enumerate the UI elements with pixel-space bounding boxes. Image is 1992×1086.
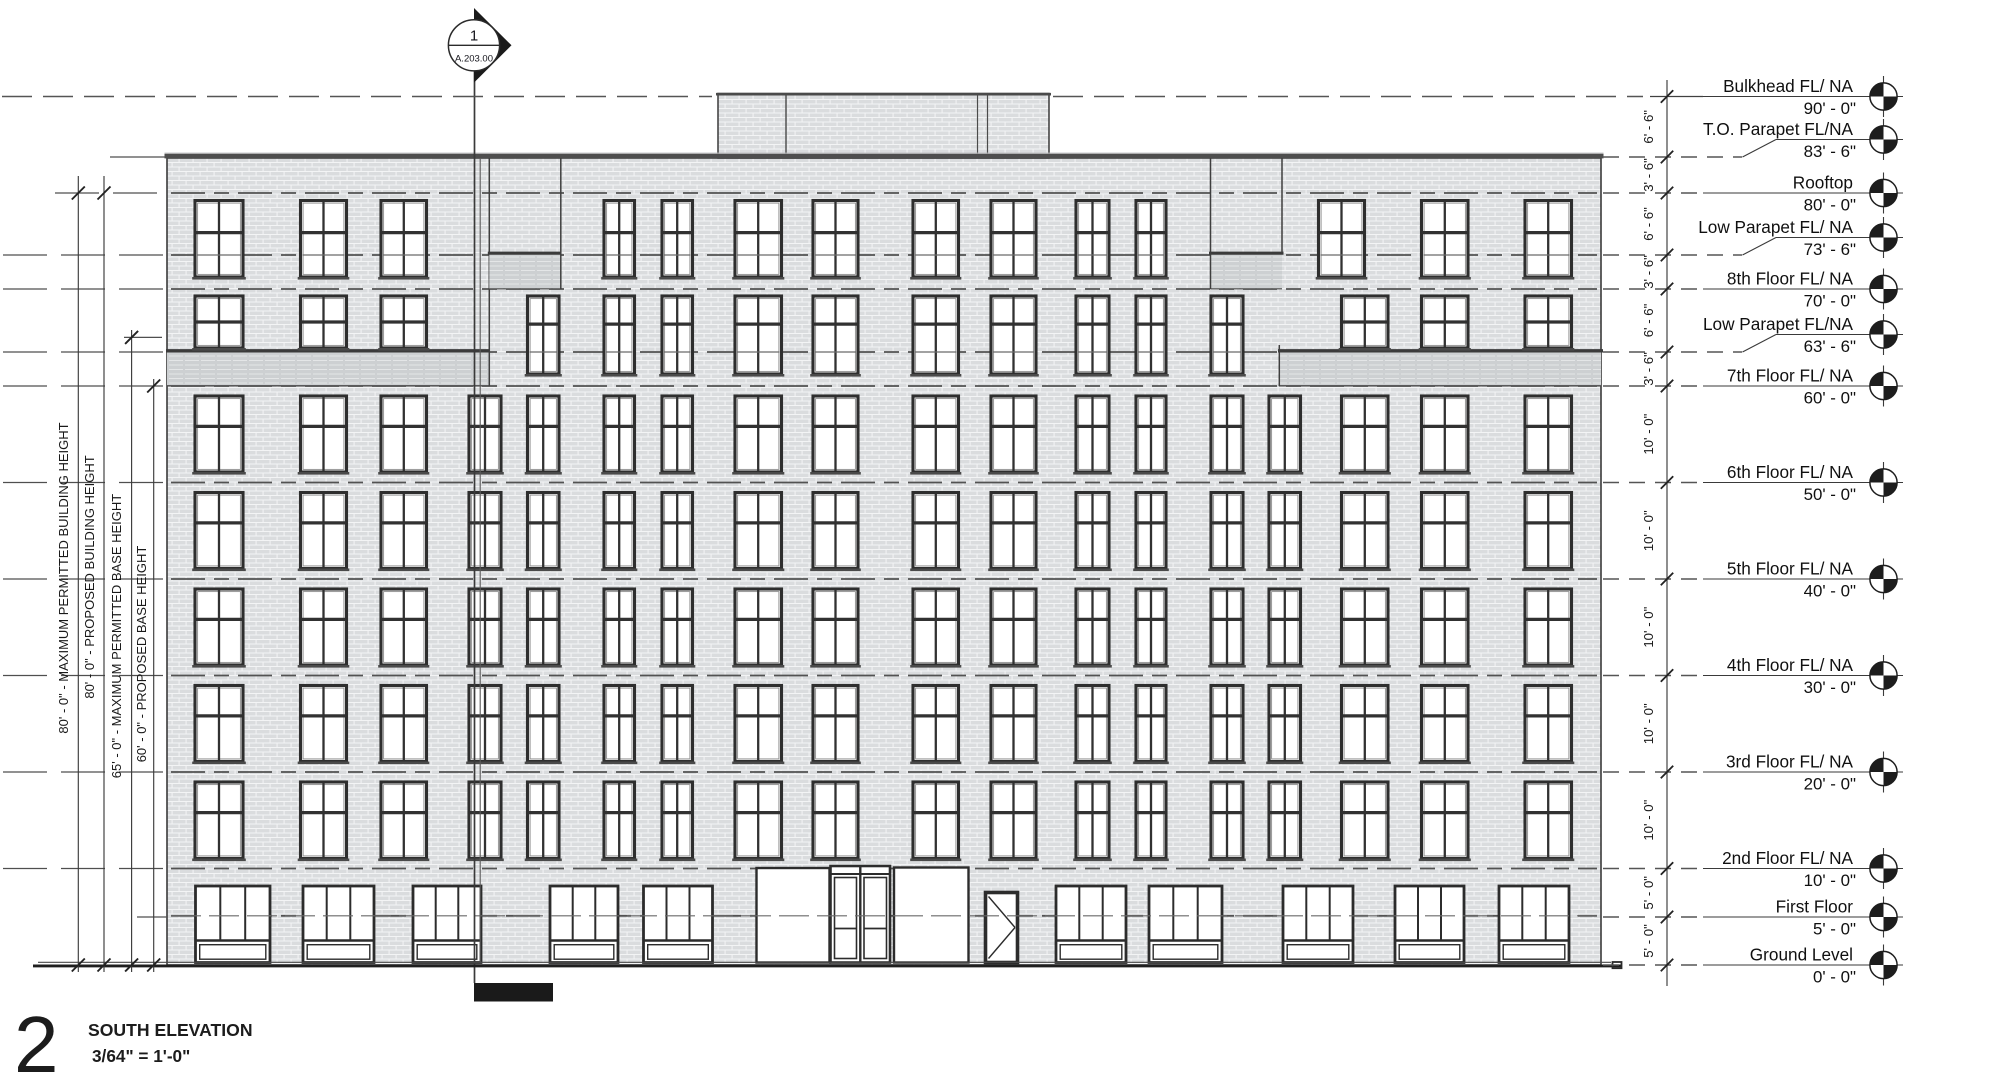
svg-text:50' - 0": 50' - 0" xyxy=(1804,485,1856,504)
svg-text:3' - 6": 3' - 6" xyxy=(1641,352,1656,386)
svg-text:20' - 0": 20' - 0" xyxy=(1804,775,1856,794)
svg-text:6' - 6": 6' - 6" xyxy=(1641,207,1656,241)
svg-text:0' - 0": 0' - 0" xyxy=(1813,968,1856,987)
svg-text:A.203.00: A.203.00 xyxy=(455,54,493,65)
svg-text:Rooftop: Rooftop xyxy=(1793,173,1853,193)
svg-text:3/64" = 1'-0": 3/64" = 1'-0" xyxy=(92,1046,190,1066)
svg-text:6' - 6": 6' - 6" xyxy=(1641,110,1656,144)
svg-text:Bulkhead FL/ NA: Bulkhead FL/ NA xyxy=(1723,76,1853,96)
svg-text:80' - 0" - PROPOSED BUILDING H: 80' - 0" - PROPOSED BUILDING HEIGHT xyxy=(82,455,97,698)
svg-text:30' - 0": 30' - 0" xyxy=(1804,678,1856,697)
svg-text:3rd Floor FL/ NA: 3rd Floor FL/ NA xyxy=(1726,752,1854,772)
svg-text:5' - 0": 5' - 0" xyxy=(1641,876,1656,910)
svg-text:70' - 0": 70' - 0" xyxy=(1804,292,1856,311)
svg-text:2: 2 xyxy=(14,1000,59,1086)
svg-text:Low Parapet FL/NA: Low Parapet FL/NA xyxy=(1703,314,1854,334)
svg-text:6th Floor FL/ NA: 6th Floor FL/ NA xyxy=(1727,462,1854,482)
svg-text:6' - 6": 6' - 6" xyxy=(1641,303,1656,337)
svg-text:90' - 0": 90' - 0" xyxy=(1804,99,1856,118)
svg-text:73' - 6": 73' - 6" xyxy=(1804,240,1856,259)
svg-text:40' - 0": 40' - 0" xyxy=(1804,582,1856,601)
svg-text:3' - 6": 3' - 6" xyxy=(1641,255,1656,289)
svg-text:Ground Level: Ground Level xyxy=(1750,945,1853,965)
svg-text:65' - 0" - MAXIMUM PERMITTED B: 65' - 0" - MAXIMUM PERMITTED BASE HEIGHT xyxy=(109,494,124,779)
svg-text:10' - 0": 10' - 0" xyxy=(1641,799,1656,840)
svg-text:80' - 0": 80' - 0" xyxy=(1804,196,1856,215)
svg-text:60' - 0" - PROPOSED BASE HEIG: 60' - 0" - PROPOSED BASE HEIGHT xyxy=(134,546,149,763)
svg-text:T.O. Parapet FL/NA: T.O. Parapet FL/NA xyxy=(1703,119,1854,139)
svg-text:10' - 0": 10' - 0" xyxy=(1804,871,1856,890)
svg-text:10' - 0": 10' - 0" xyxy=(1641,703,1656,744)
svg-text:Low Parapet FL/ NA: Low Parapet FL/ NA xyxy=(1698,217,1853,237)
svg-text:5' - 0": 5' - 0" xyxy=(1813,920,1856,939)
svg-text:7th Floor FL/ NA: 7th Floor FL/ NA xyxy=(1727,366,1854,386)
svg-text:3' - 6": 3' - 6" xyxy=(1641,158,1656,192)
svg-text:60' - 0": 60' - 0" xyxy=(1804,389,1856,408)
svg-text:4th Floor FL/ NA: 4th Floor FL/ NA xyxy=(1727,655,1854,675)
svg-text:10' - 0": 10' - 0" xyxy=(1641,606,1656,647)
svg-text:2nd Floor FL/ NA: 2nd Floor FL/ NA xyxy=(1722,848,1853,868)
svg-text:10' - 0": 10' - 0" xyxy=(1641,413,1656,454)
svg-text:8th Floor FL/ NA: 8th Floor FL/ NA xyxy=(1727,269,1854,289)
svg-text:10' - 0": 10' - 0" xyxy=(1641,510,1656,551)
svg-text:5' - 0": 5' - 0" xyxy=(1641,924,1656,958)
svg-text:1: 1 xyxy=(470,28,478,45)
svg-text:First Floor: First Floor xyxy=(1776,897,1854,917)
svg-text:SOUTH ELEVATION: SOUTH ELEVATION xyxy=(88,1020,253,1040)
svg-text:80' - 0" - MAXIMUM PERMITTED B: 80' - 0" - MAXIMUM PERMITTED BUILDING HE… xyxy=(56,422,71,733)
svg-text:63' - 6": 63' - 6" xyxy=(1804,337,1856,356)
svg-text:5th Floor FL/ NA: 5th Floor FL/ NA xyxy=(1727,559,1854,579)
svg-text:83' - 6": 83' - 6" xyxy=(1804,142,1856,161)
